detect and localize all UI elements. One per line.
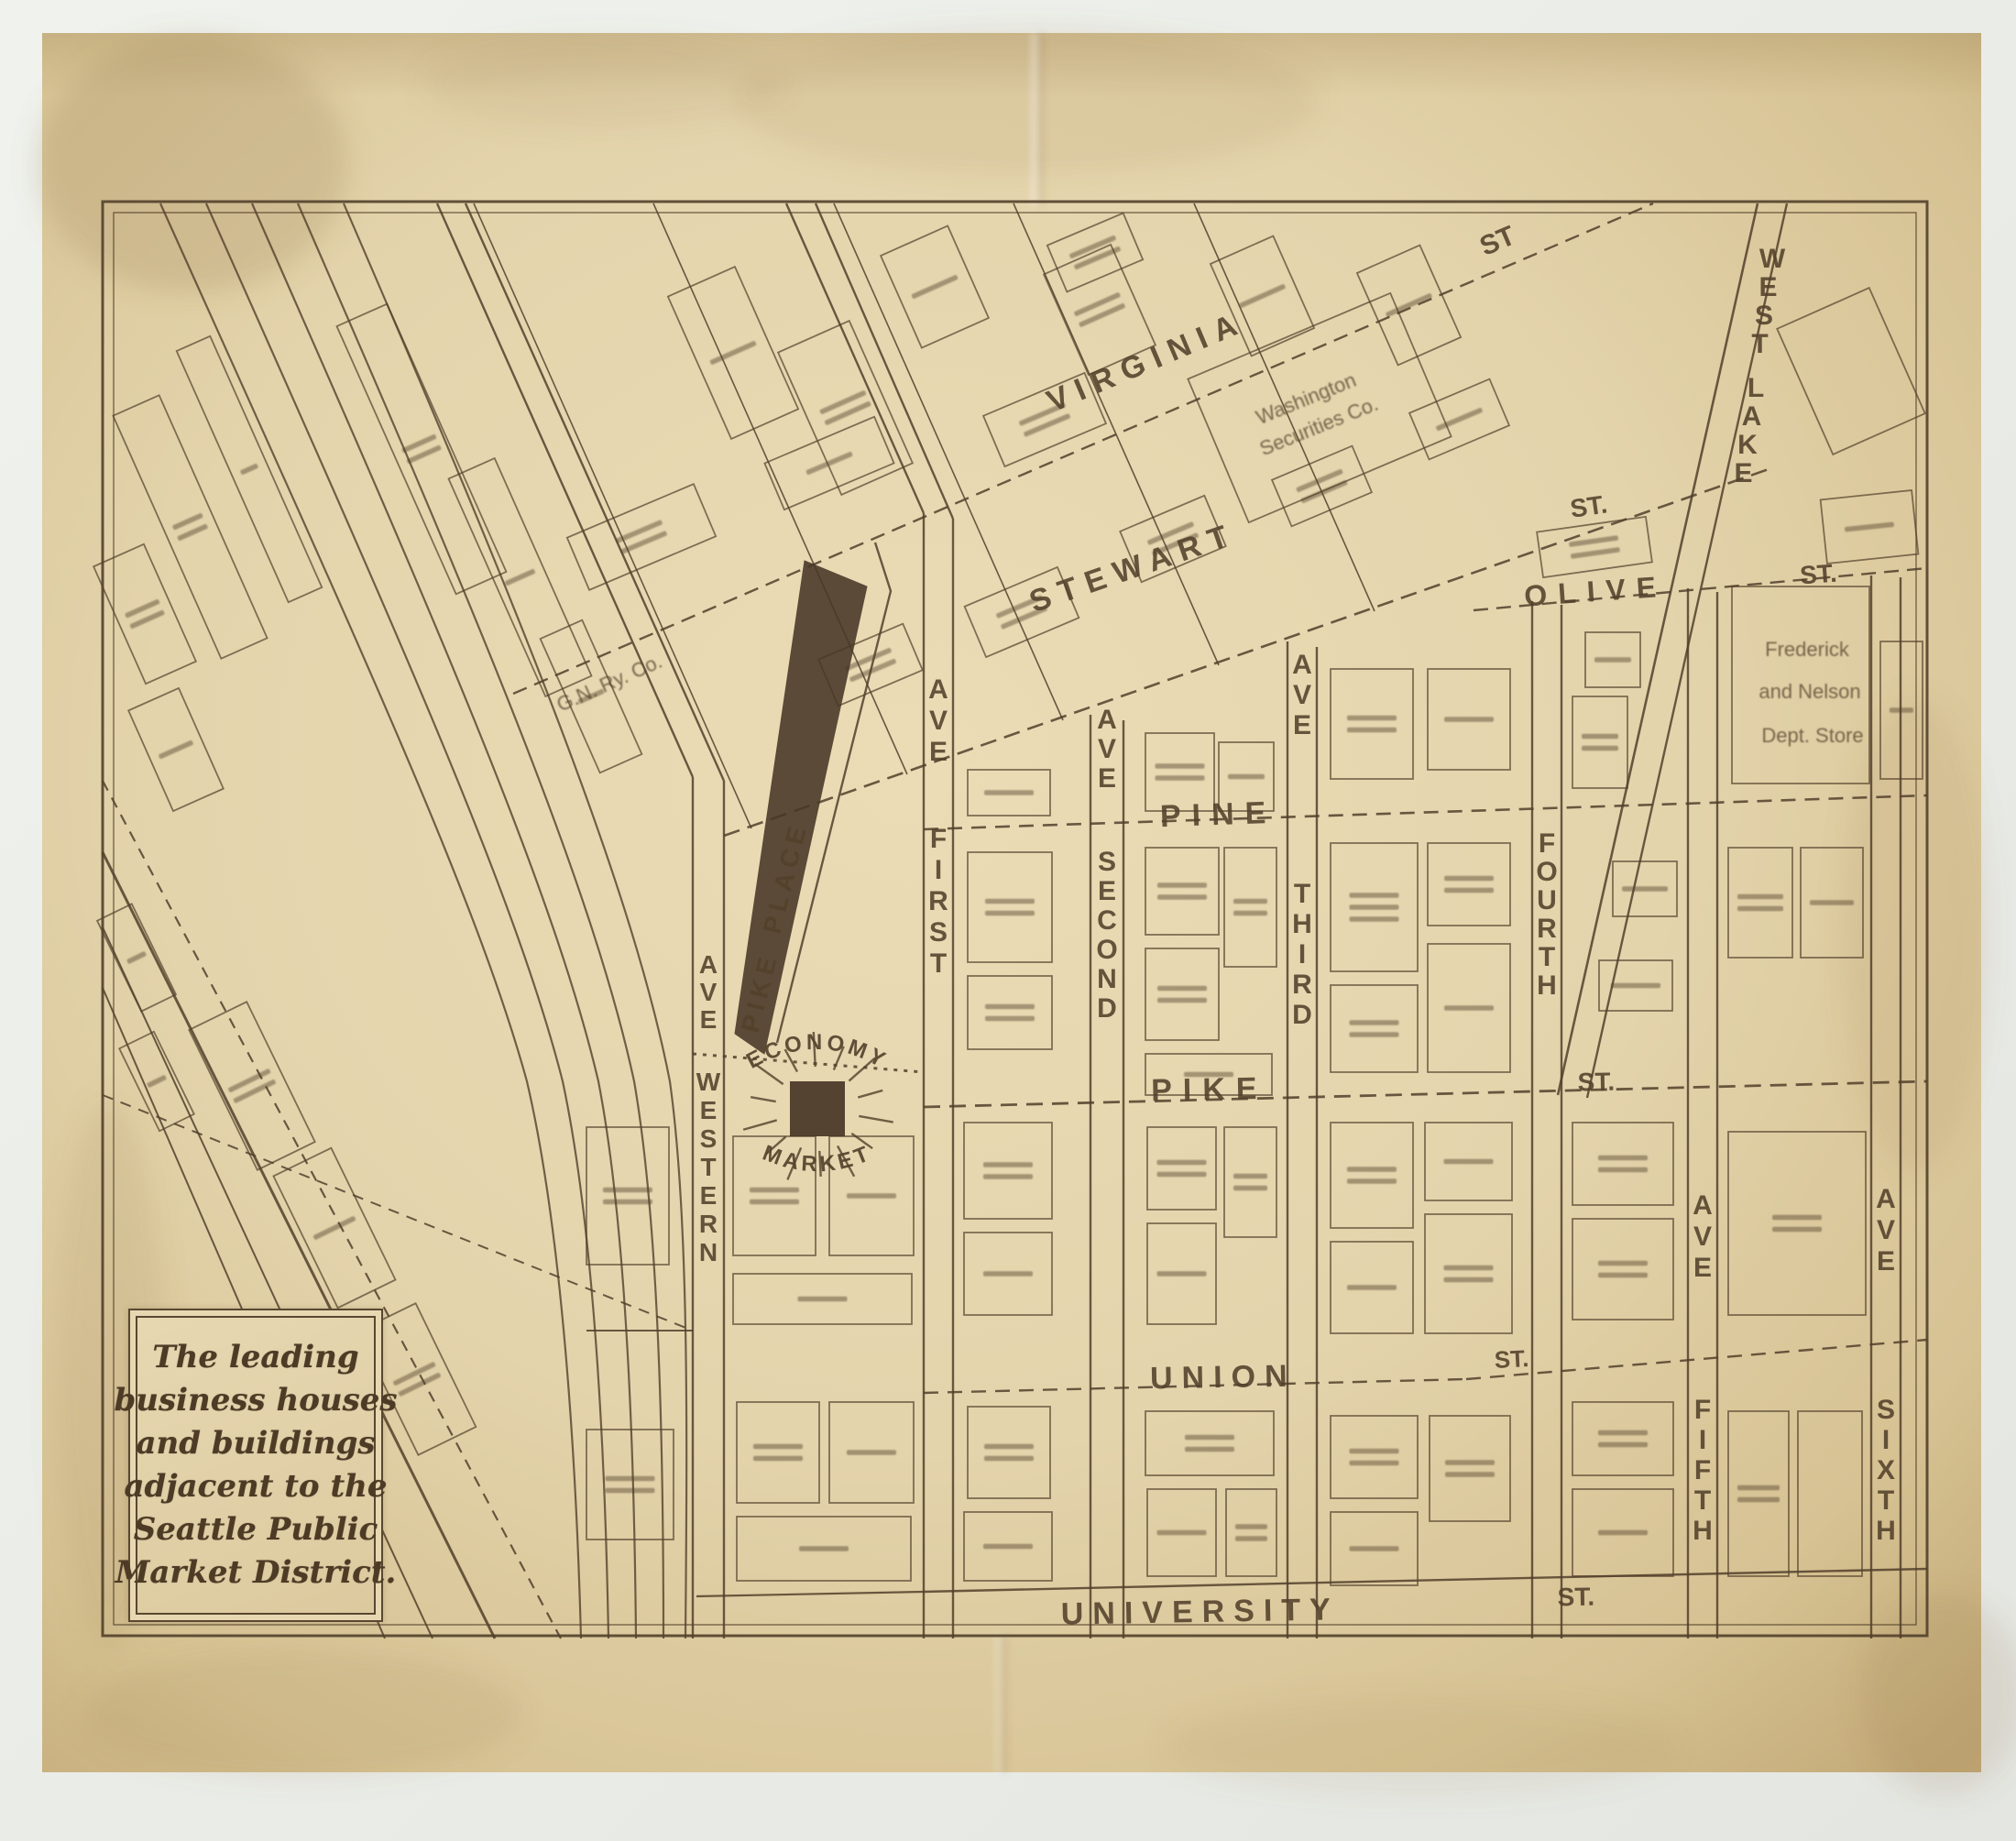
building-label-smudge [1233,1174,1267,1179]
building-label-smudge [1772,1215,1822,1221]
street-label-university: UNIVERSITY [1060,1592,1340,1631]
building-label-smudge [1350,904,1399,910]
title-line: adjacent to the [125,1465,388,1508]
building-label-smudge [606,1488,655,1494]
building-label-smudge [984,1456,1034,1462]
building-label-smudge [1233,911,1267,916]
street-label-western-ave-upper: AVE [699,950,718,1034]
building-label-smudge [1347,728,1397,733]
building-label-smudge [1228,774,1265,780]
title-line: and buildings [136,1422,375,1465]
building-label-smudge [985,1016,1035,1022]
building-label-smudge [1444,888,1494,893]
building-label-smudge [983,1162,1033,1167]
map-title-cartouche: The leading business houses and building… [128,1309,383,1622]
building-label-smudge [1444,1277,1494,1283]
building-label-smudge [1445,1472,1495,1477]
building-label-smudge [1157,986,1207,992]
street-label-first-ave: FIRST [928,824,948,979]
building-label-smudge [1235,1536,1267,1541]
building-label-smudge [1598,1530,1648,1536]
street-label-union-st: ST. [1494,1344,1529,1374]
building-label-frederick-nelson-2: and Nelson [1759,680,1860,703]
building-label-smudge [1598,1430,1648,1436]
building-label-smudge [753,1456,803,1462]
building-label-smudge [1772,1227,1822,1233]
building-label-smudge [1582,746,1618,751]
building-label-smudge [1156,775,1205,781]
building-label-smudge [1582,734,1618,740]
building-label-smudge [606,1476,655,1482]
street-label-fifth-ave: FIFTH [1693,1395,1713,1546]
building-label-smudge [1350,1546,1399,1551]
building-label-smudge [1350,1461,1399,1466]
street-label-olive-st: ST. [1799,559,1838,590]
building-label-smudge [1598,1261,1648,1266]
building-label-smudge [1233,899,1267,904]
building-label-smudge [983,1174,1033,1179]
building-label-smudge [1157,882,1207,888]
building-label-smudge [1444,876,1494,882]
building-label-smudge [1347,716,1397,721]
street-label-second-ave: SECOND [1096,847,1117,1024]
building-label-smudge [1737,1497,1780,1503]
building-label-smudge [1445,1460,1495,1465]
building-label-smudge [1350,893,1399,898]
building-label-smudge [1611,983,1660,989]
title-line: The leading [152,1336,358,1379]
building-label-smudge [1444,1266,1494,1271]
building-label-smudge [1157,998,1207,1003]
building-label-smudge [1185,1447,1234,1452]
building-label-frederick-nelson-3: Dept. Store [1761,724,1863,747]
street-label-stewart-st: ST. [1568,489,1608,522]
building-label-smudge [1157,1530,1207,1536]
building-label-smudge [1350,1032,1399,1037]
street-label-first-ave-upper: AVE [928,674,948,767]
building-label-smudge [1157,1172,1207,1178]
building-label-smudge [984,1444,1034,1450]
building-label-smudge [983,1271,1033,1277]
building-label-smudge [798,1297,848,1302]
building-label-smudge [1444,1005,1494,1011]
building-label-smudge [1810,900,1854,905]
building-label-smudge [985,911,1035,916]
building-label-smudge [1347,1178,1397,1184]
building-label-smudge [603,1200,652,1205]
building-label-smudge [1350,1020,1399,1025]
title-line: Seattle Public [134,1508,378,1551]
building-label-smudge [1347,1285,1397,1290]
building-label-smudge [799,1546,849,1551]
building-label-smudge [847,1450,896,1455]
building-label-smudge [1157,1160,1207,1166]
building-label-smudge [1347,1167,1397,1172]
street-label-fifth-ave-upper: AVE [1693,1190,1713,1283]
building-label-smudge [1185,1435,1234,1441]
building-label-smudge [1622,886,1668,892]
building-label-smudge [1444,1159,1494,1165]
street-label-pike: PIKE [1151,1071,1268,1108]
street-label-pine: PINE [1159,795,1277,834]
building-label-smudge [1737,906,1783,912]
street-label-sixth-ave-upper: AVE [1876,1184,1896,1277]
building-label-smudge [1156,763,1205,769]
building-label-smudge [985,899,1035,904]
building-label-smudge [1737,894,1783,900]
street-label-sixth-ave: SIXTH [1876,1395,1896,1546]
street-label-third-ave-upper: AVE [1292,650,1312,740]
title-line: Market District. [115,1551,397,1594]
street-label-university-st: ST. [1557,1583,1594,1612]
building-label-smudge [984,790,1034,795]
building-label-smudge [750,1188,799,1193]
building-label-smudge [1350,1449,1399,1454]
building-label-smudge [603,1188,652,1193]
building-label-smudge [1598,1156,1648,1161]
building-label-smudge [1890,707,1913,713]
building-label-frederick-nelson-1: Frederick [1765,638,1850,661]
building-label-smudge [1235,1524,1267,1529]
economy-market-building [790,1081,845,1136]
building-label-smudge [1737,1485,1780,1491]
building-label-smudge [753,1444,803,1450]
street-label-fourth-ave: FOURTH [1536,828,1557,1001]
building-label-smudge [1233,1186,1267,1191]
building-label-smudge [1444,717,1494,722]
title-line: business houses [114,1379,397,1422]
building-label-smudge [847,1193,896,1199]
building-label-smudge [1598,1273,1648,1278]
building-label-smudge [1350,916,1399,922]
building-label-smudge [1598,1442,1648,1448]
building-label-smudge [985,1004,1035,1010]
building-label-smudge [1157,1271,1207,1277]
building-label-smudge [1157,894,1207,900]
street-label-union: UNION [1150,1359,1297,1397]
building-label-smudge [750,1200,799,1205]
street-label-second-ave-upper: AVE [1097,705,1117,794]
building-label-smudge [983,1544,1033,1550]
street-label-pike-st: ST. [1577,1068,1615,1097]
building-label-smudge [1594,657,1631,663]
building-label-smudge [1598,1167,1648,1173]
photo-backdrop: ECONOMYMARKET VIRGINIASTSTEWARTST.OLIVES… [0,0,2016,1841]
